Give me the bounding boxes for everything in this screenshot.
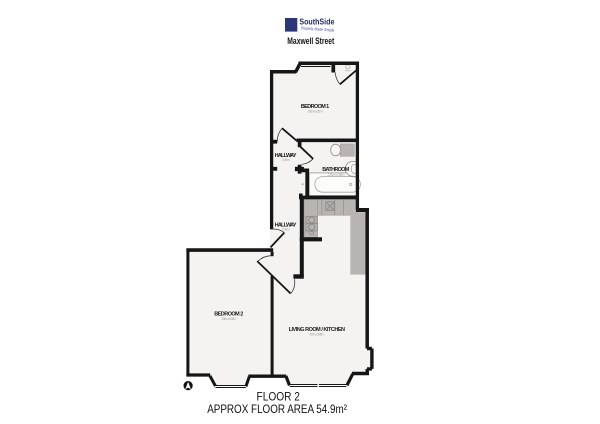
svg-text:Property Made Simple: Property Made Simple (301, 25, 335, 32)
svg-text:2.31m x 1.68m: 2.31m x 1.68m (328, 173, 345, 177)
svg-text:3.96m x 3.33m: 3.96m x 3.33m (308, 110, 323, 114)
svg-text:4.57m x 3.05m: 4.57m x 3.05m (309, 332, 324, 336)
svg-text:3.96m x 3.05m: 3.96m x 3.05m (221, 317, 236, 321)
svg-text:1.98m: 1.98m (281, 158, 290, 162)
svg-text:FLOOR 2: FLOOR 2 (257, 389, 300, 403)
svg-text:Maxwell Street: Maxwell Street (287, 36, 334, 46)
svg-text:APPROX FLOOR AREA 54.9m²: APPROX FLOOR AREA 54.9m² (207, 402, 347, 416)
svg-text:1.98m: 1.98m (281, 227, 290, 231)
